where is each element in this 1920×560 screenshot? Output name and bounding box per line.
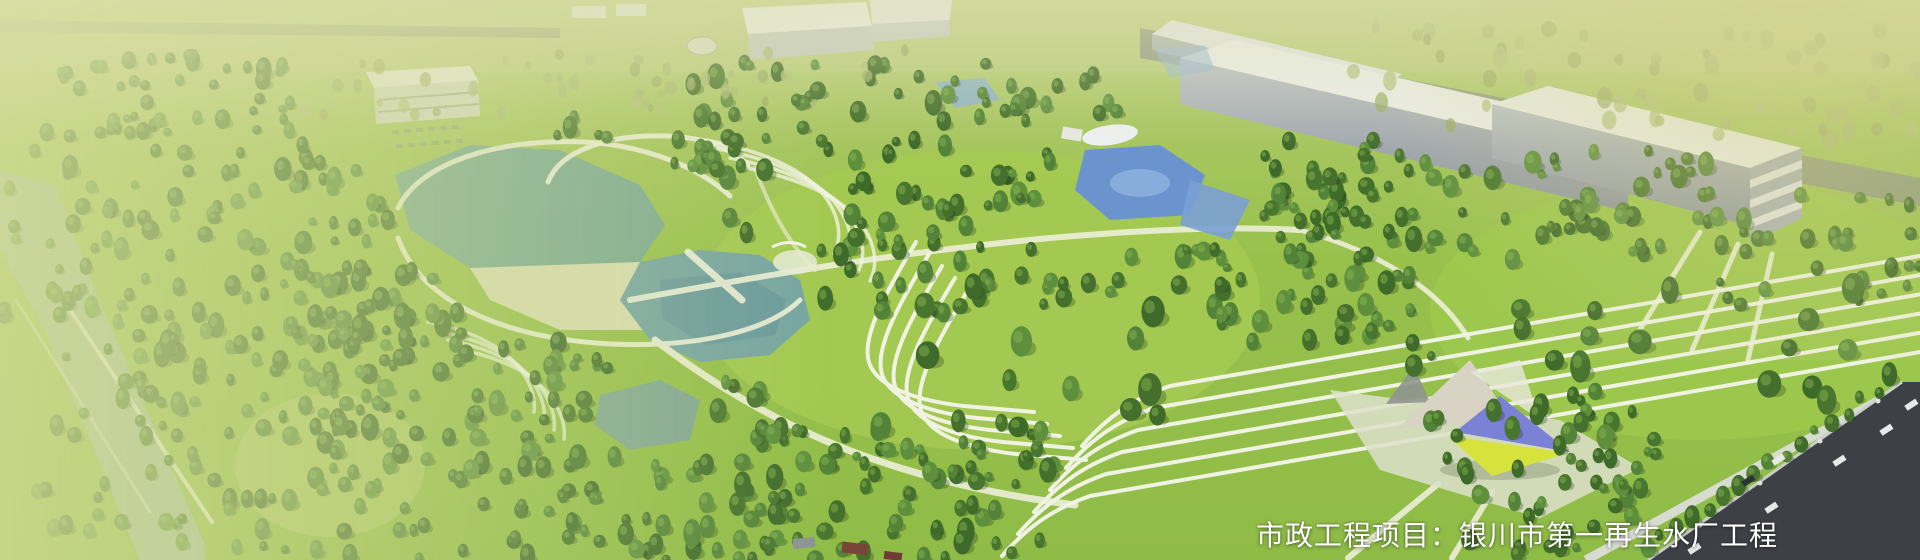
aerial-rendering (0, 0, 1920, 560)
hero-banner: 市政工程项目：银川市第一再生水厂工程 (0, 0, 1920, 560)
banner-caption: 市政工程项目：银川市第一再生水厂工程 (1256, 520, 1778, 552)
